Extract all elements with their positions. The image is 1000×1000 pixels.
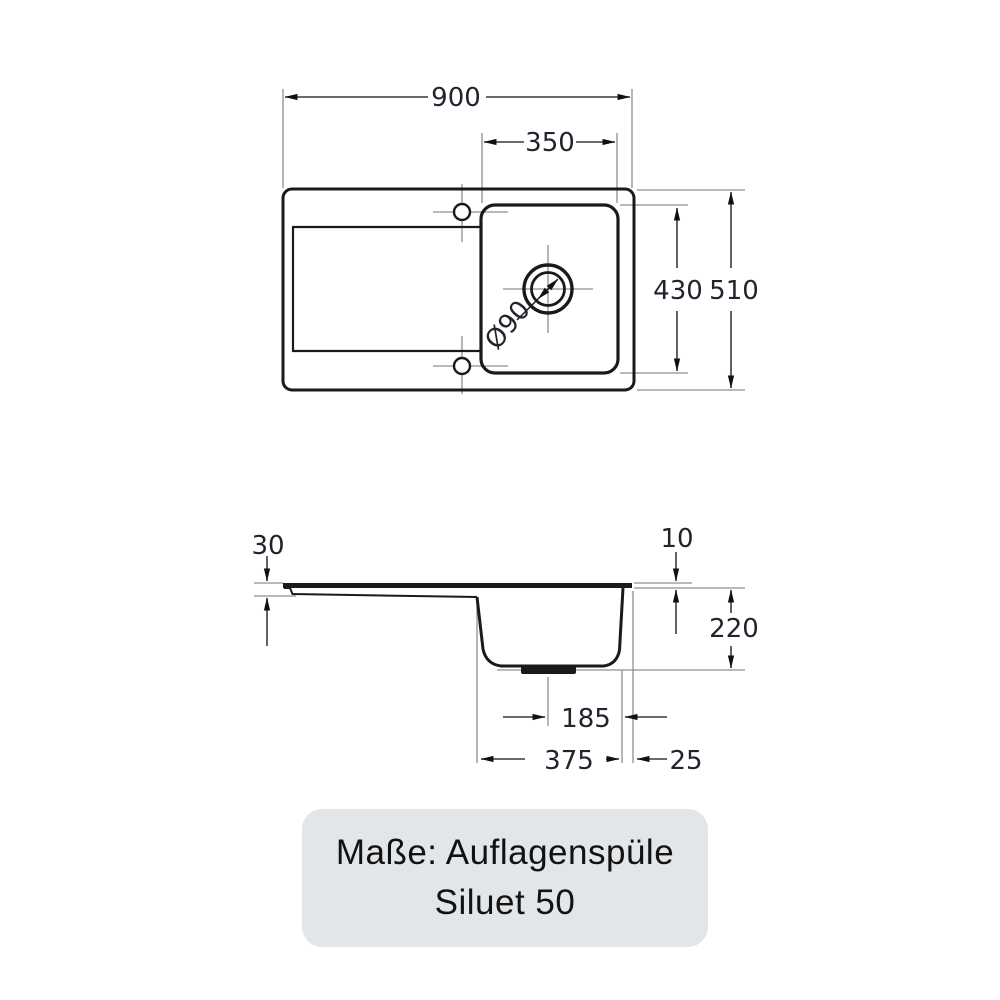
caption-box: Maße: Auflagenspüle Siluet 50	[302, 809, 708, 947]
drain-fitting-profile	[521, 665, 576, 674]
caption-line1: Maße: Auflagenspüle	[336, 828, 674, 878]
dim-label-drain-offset: 185	[561, 704, 611, 734]
dim-label-edge-offset: 25	[669, 746, 702, 776]
dim-label-bowl-depth: 220	[709, 614, 759, 644]
drain-diameter-arrow-ne	[548, 279, 558, 289]
dim-label-bowl-width: 350	[525, 128, 575, 158]
dim-label-front-edge-height: 30	[251, 531, 284, 561]
dimension-labels: 900 350 430 510 Ø90 30 10 220 185 375 25	[251, 83, 758, 776]
dim-label-bowl-base-width: 375	[544, 746, 594, 776]
dim-label-overall-depth: 510	[709, 276, 759, 306]
tap-hole-top	[454, 204, 470, 220]
side-view	[283, 586, 632, 675]
drainboard-underside-profile	[284, 588, 477, 597]
dimension-drawing-page: 900 350 430 510 Ø90 30 10 220 185 375 25…	[0, 0, 1000, 1000]
dim-label-overall-width: 900	[431, 83, 481, 113]
dimension-lines	[267, 97, 731, 759]
drain-diameter-arrow-sw	[538, 289, 548, 299]
drainboard-outline	[293, 227, 480, 351]
dim-label-bowl-length: 430	[653, 276, 703, 306]
caption-line2: Siluet 50	[435, 878, 576, 928]
tap-hole-bottom	[454, 358, 470, 374]
bowl-profile	[477, 588, 623, 666]
dim-label-rim-thickness: 10	[660, 524, 693, 554]
